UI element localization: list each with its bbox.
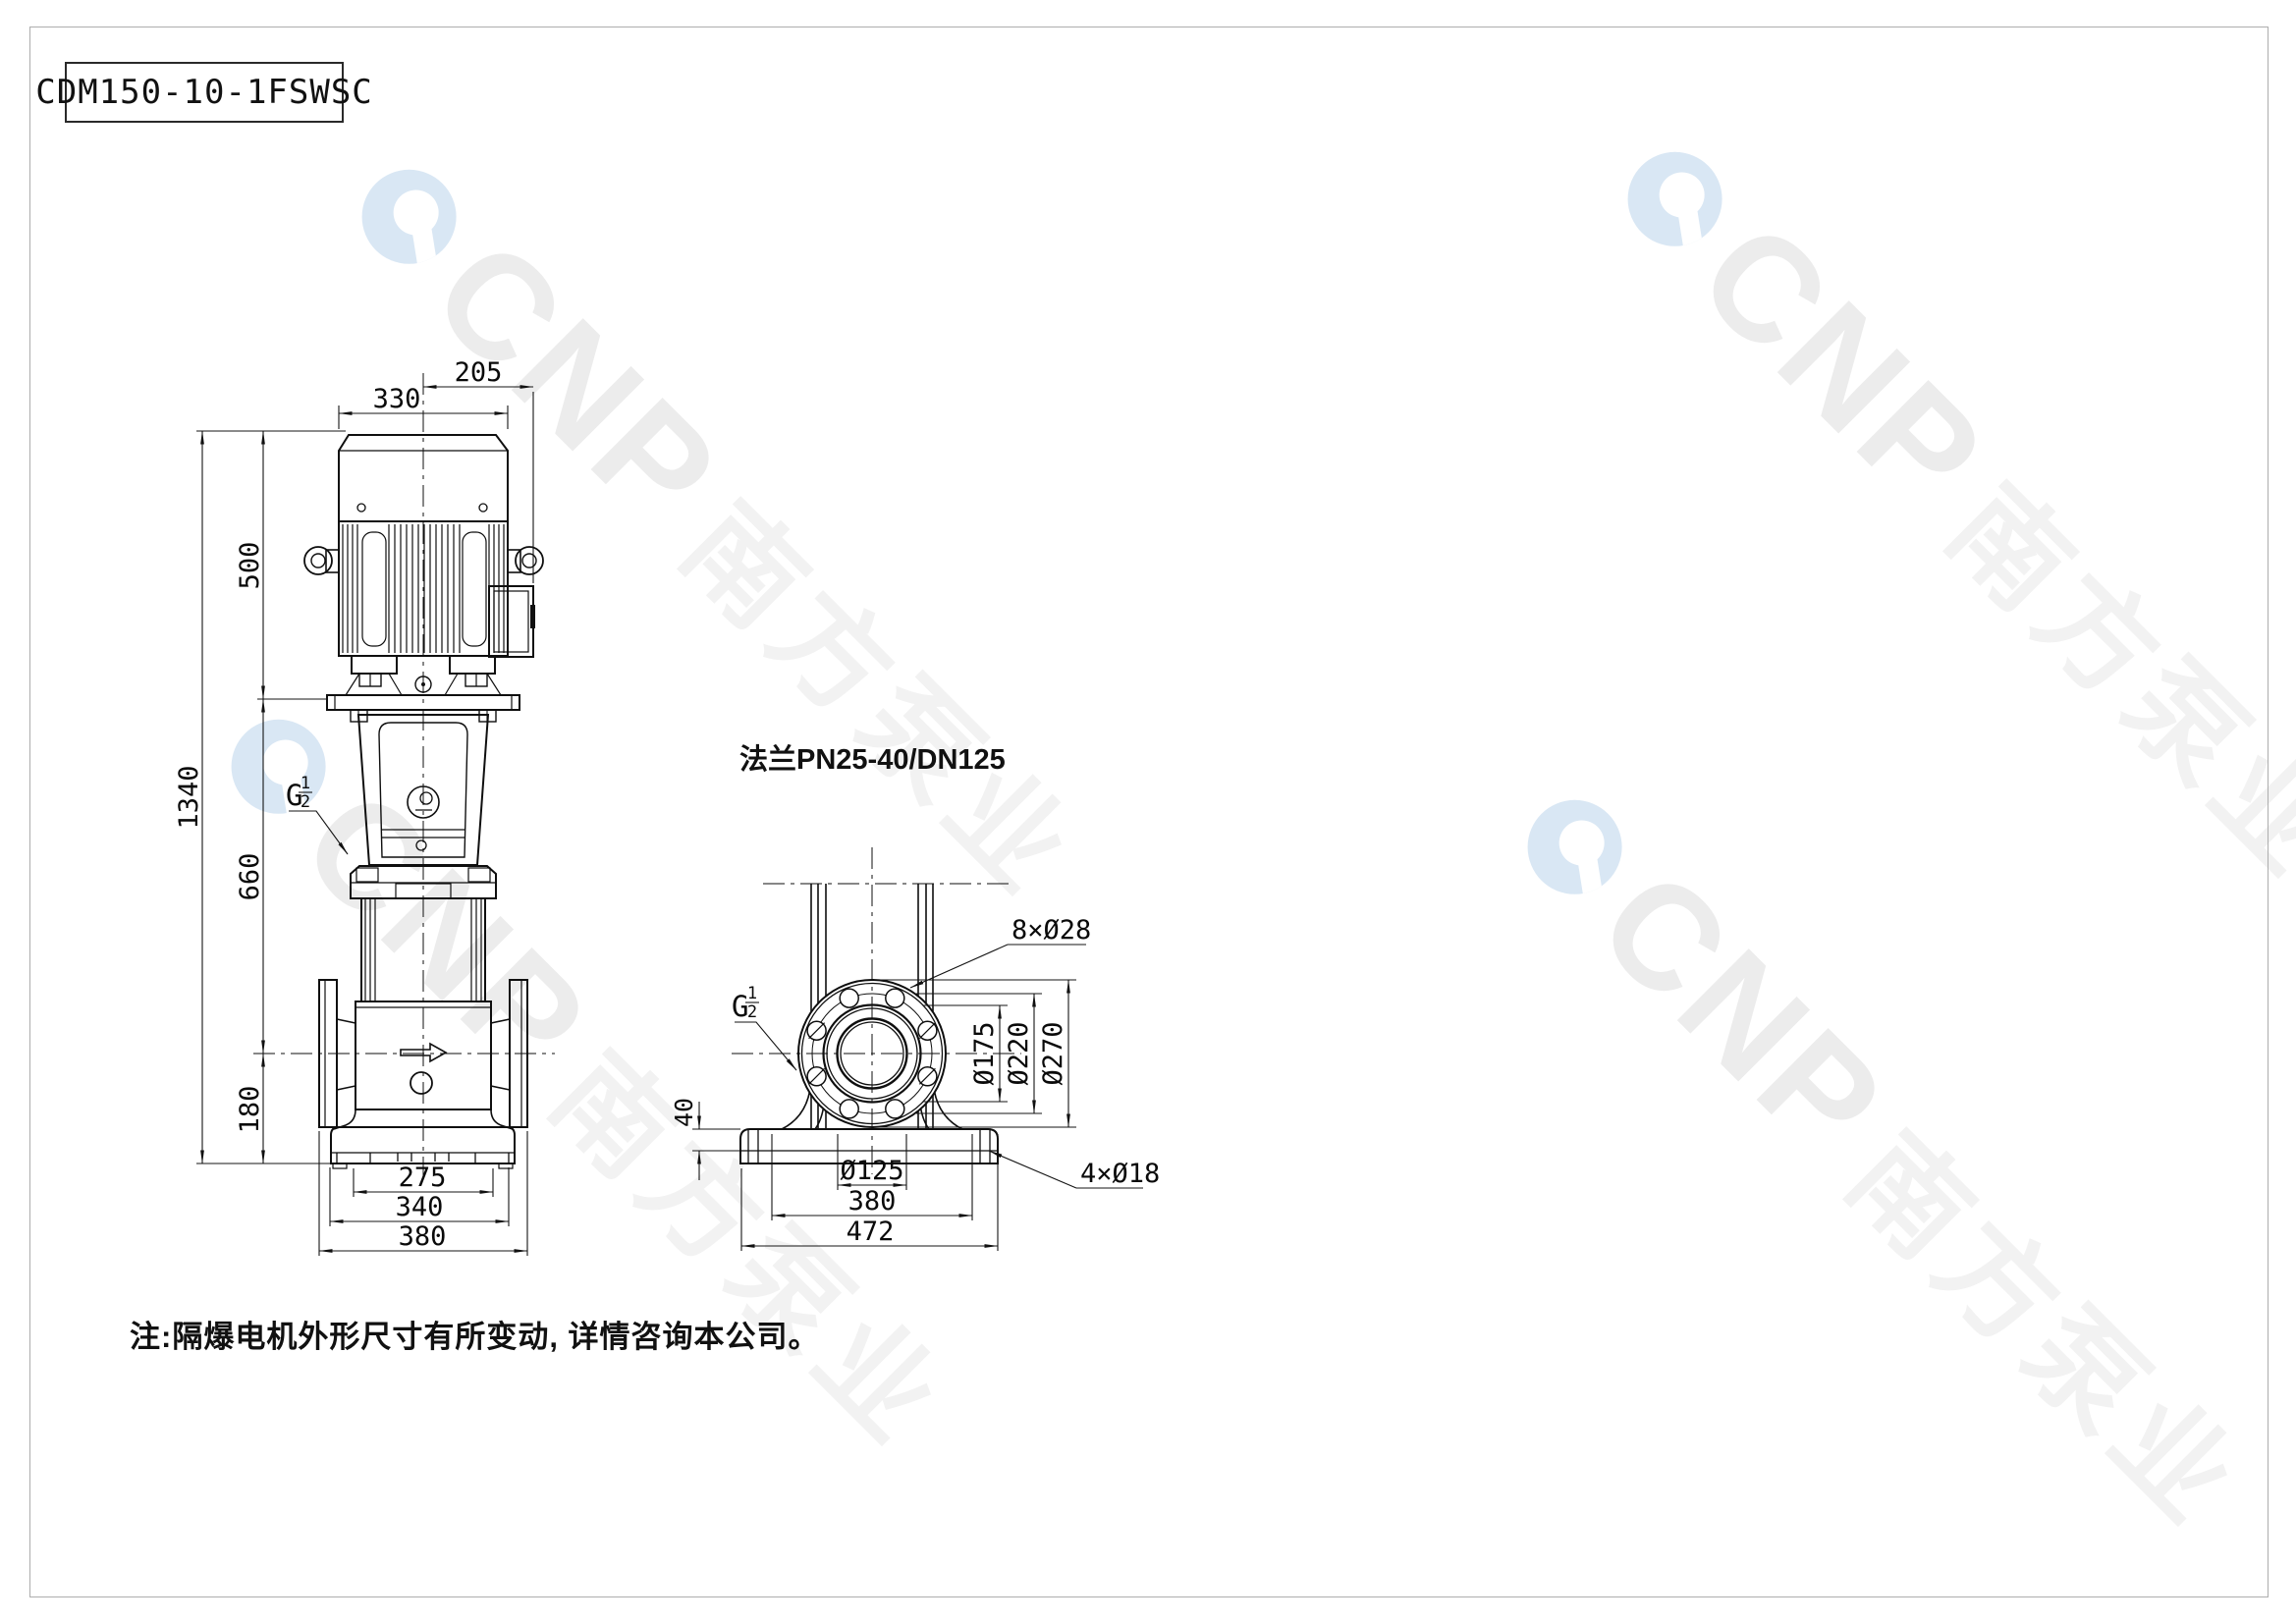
dim-flange-bolt-holes: 8×Ø28 <box>1011 915 1091 946</box>
dim-terminal-offset: 205 <box>455 357 503 388</box>
dim-port-height: 180 <box>235 1086 265 1134</box>
dim-total-height: 1340 <box>174 765 204 829</box>
dim-base-width: 340 <box>396 1192 444 1222</box>
dim-motor-width: 330 <box>373 384 421 414</box>
drawing-sheet: CNP 南方泵业 CNP 南方泵业 CNP 南方泵业 CNP 南方泵业 <box>0 0 2296 1623</box>
model-number: CDM150-10-1FSWSC <box>35 73 373 112</box>
flange-spec-label: 法兰PN25-40/DN125 <box>739 736 1006 778</box>
dim-mid-height: 660 <box>235 853 265 901</box>
dim-base-holes: 4×Ø18 <box>1080 1159 1160 1189</box>
dim-base-length: 472 <box>847 1217 895 1247</box>
dim-bolt-circle-dia: Ø220 <box>1004 1021 1034 1085</box>
dim-motor-height: 500 <box>235 542 265 590</box>
side-view <box>732 847 1021 1174</box>
dim-base-bolt-span: 380 <box>848 1186 897 1217</box>
dim-bore-dia: Ø125 <box>840 1156 903 1186</box>
dim-raised-face-dia: Ø175 <box>969 1021 1000 1085</box>
dim-feet-bolt-span: 275 <box>399 1163 447 1193</box>
note-text: 注:隔爆电机外形尺寸有所变动, 详情咨询本公司。 <box>130 1312 820 1356</box>
dim-base-plate-height: 40 <box>670 1098 698 1127</box>
front-view <box>253 373 555 1176</box>
thread-label-num: 1 <box>301 774 310 793</box>
thread-label-den: 2 <box>301 792 310 812</box>
title-block: CDM150-10-1FSWSC <box>65 62 344 123</box>
thread-label-den: 2 <box>747 1002 757 1022</box>
thread-label-g: G <box>732 990 748 1023</box>
dim-flange-span: 380 <box>399 1221 447 1252</box>
dim-flange-outer-dia: Ø270 <box>1038 1021 1068 1085</box>
thread-label-num: 1 <box>747 984 757 1003</box>
engineering-drawing: 330 205 1340 500 660 180 275 340 380 G 1… <box>0 0 2296 1623</box>
